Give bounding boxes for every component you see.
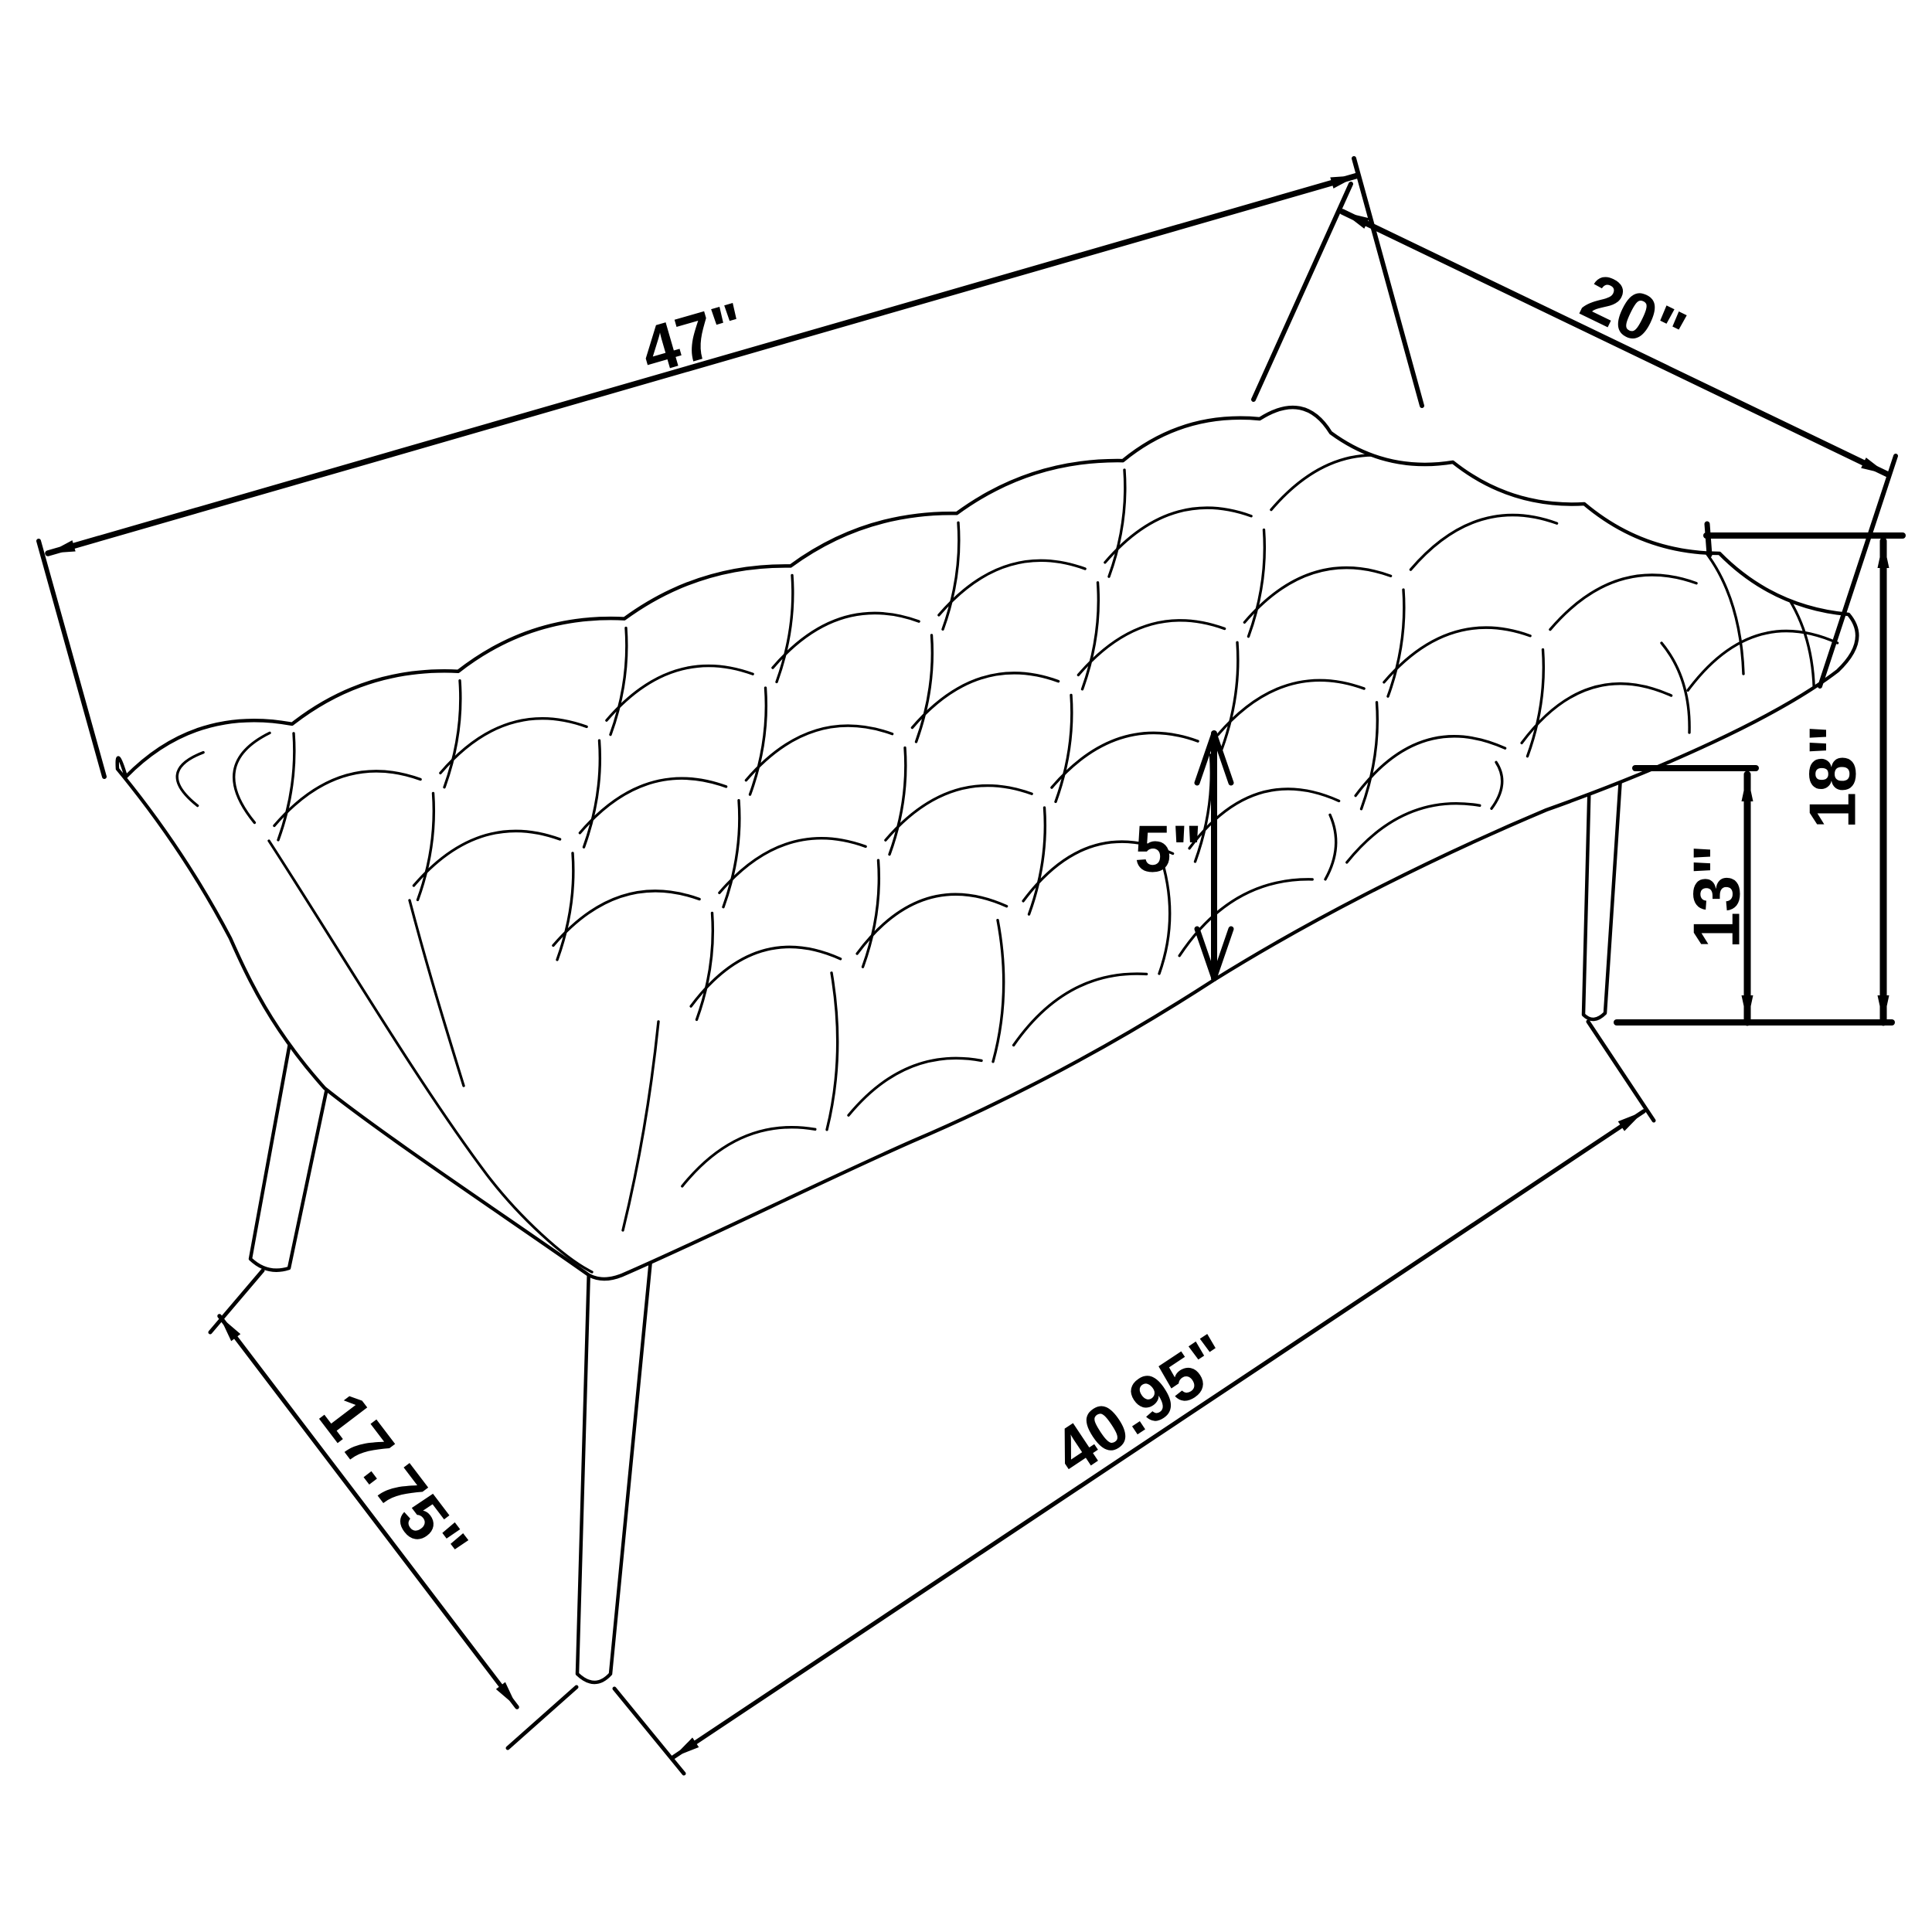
svg-text:5": 5": [1134, 813, 1202, 886]
svg-text:18": 18": [1797, 725, 1870, 829]
svg-text:13": 13": [1681, 845, 1754, 949]
